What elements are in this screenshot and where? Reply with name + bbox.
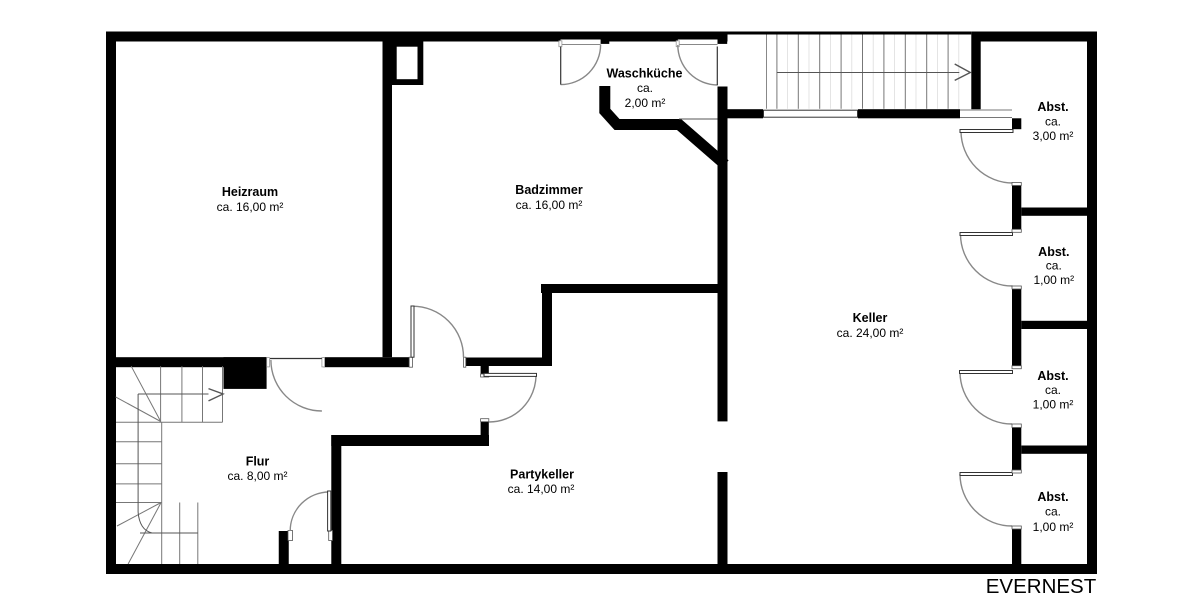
svg-text:Abst.: Abst. — [1038, 245, 1069, 259]
svg-text:Abst.: Abst. — [1037, 490, 1068, 504]
svg-text:Flur: Flur — [246, 455, 270, 469]
svg-text:ca. 16,00 m²: ca. 16,00 m² — [217, 200, 284, 214]
svg-text:2,00 m²: 2,00 m² — [625, 96, 666, 110]
svg-text:ca. 24,00 m²: ca. 24,00 m² — [837, 326, 904, 340]
svg-text:ca.: ca. — [1045, 115, 1061, 129]
svg-text:ca.: ca. — [637, 81, 653, 95]
svg-text:Waschküche: Waschküche — [607, 67, 683, 81]
svg-text:Heizraum: Heizraum — [222, 185, 278, 199]
svg-text:ca. 14,00 m²: ca. 14,00 m² — [508, 482, 575, 496]
svg-text:Abst.: Abst. — [1037, 369, 1068, 383]
svg-text:Abst.: Abst. — [1037, 100, 1068, 114]
svg-text:1,00 m²: 1,00 m² — [1033, 273, 1074, 287]
svg-text:1,00 m²: 1,00 m² — [1033, 520, 1074, 534]
svg-text:ca.: ca. — [1045, 383, 1061, 397]
svg-text:ca. 8,00 m²: ca. 8,00 m² — [227, 469, 287, 483]
svg-text:ca.: ca. — [1046, 259, 1062, 273]
svg-text:Partykeller: Partykeller — [510, 468, 574, 482]
svg-text:ca. 16,00 m²: ca. 16,00 m² — [516, 198, 583, 212]
svg-text:1,00 m²: 1,00 m² — [1033, 398, 1074, 412]
svg-text:EVERNEST: EVERNEST — [986, 575, 1097, 598]
svg-text:3,00 m²: 3,00 m² — [1033, 129, 1074, 143]
svg-text:Badzimmer: Badzimmer — [515, 183, 583, 197]
svg-text:ca.: ca. — [1045, 505, 1061, 519]
svg-text:Keller: Keller — [853, 311, 888, 325]
